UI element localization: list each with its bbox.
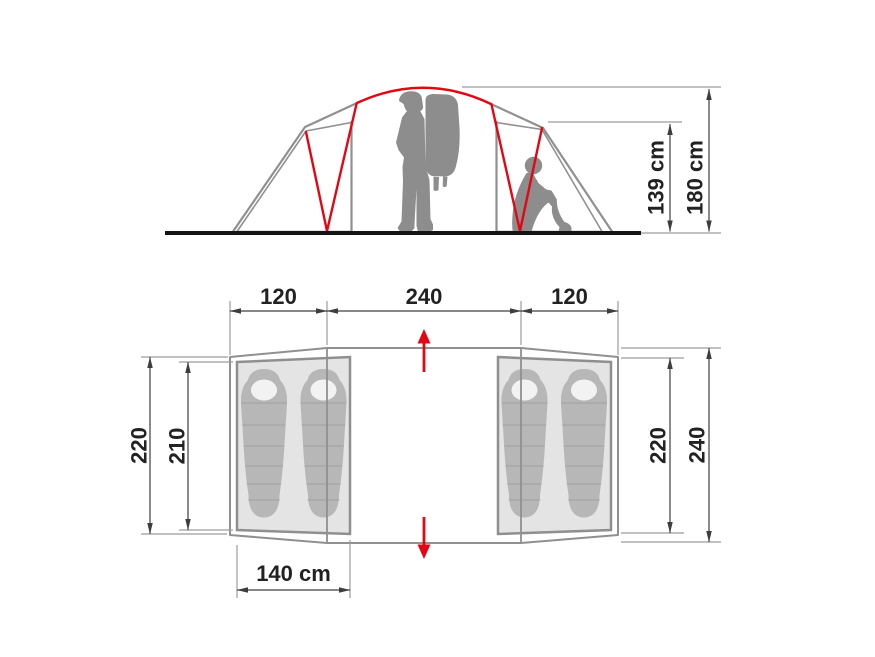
tent-outline-left [232,103,357,233]
entrance-arrow-down-icon [418,517,431,559]
left-depth-label: 220 [127,427,152,464]
tent-outline-right [491,104,613,233]
center-depth-label: 240 [685,427,710,464]
right-depth-label: 220 [646,427,671,464]
plan-left-dimensions: 220 210 [127,357,234,534]
inner-height-label: 139 cm [644,140,669,215]
peak-height-label: 180 cm [683,140,708,215]
center-width-label: 240 [406,284,443,309]
plan-right-dimensions: 220 240 [621,348,721,542]
left-cabin-length-label: 210 [165,428,190,465]
tent-panel-left [237,123,352,232]
tent-pole-arc [357,88,491,104]
entrance-arrow-up-icon [418,329,431,372]
standing-hiker-silhouette [396,91,460,231]
right-width-label: 120 [551,284,588,309]
side-view: 139 cm 180 cm [165,87,721,233]
cabin-width-label: 140 cm [256,561,331,586]
floor-plan: 120 240 120 220 210 220 240 [127,284,722,598]
tent-dimensions-diagram: 139 cm 180 cm [0,0,875,657]
plan-bottom-dimension: 140 cm [237,540,350,598]
left-width-label: 120 [260,284,297,309]
